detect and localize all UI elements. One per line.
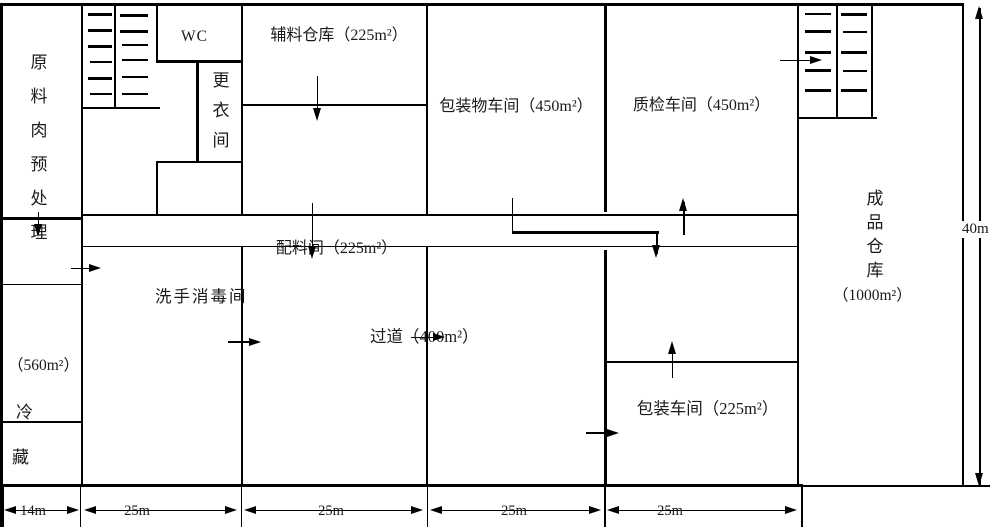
dim-span-25m-3-arrow-right xyxy=(589,506,601,514)
wall-line xyxy=(156,163,158,216)
wall-line xyxy=(242,104,427,106)
shelf-hatch-dash xyxy=(120,14,148,17)
wall-line xyxy=(605,361,798,363)
dim-span-14m-arrow-right xyxy=(67,506,79,514)
wall-line xyxy=(82,214,798,216)
dimension-label-25m-4: 25m xyxy=(645,503,695,520)
shelf-hatch-dash xyxy=(805,51,831,54)
shelf-hatch-dash xyxy=(122,59,148,61)
wall-line xyxy=(82,246,798,248)
room-label-quality-inspection: 质检车间（450m²） xyxy=(605,97,798,115)
dimension-label-25m-2: 25m xyxy=(306,503,356,520)
room-label-handwash-disinfect: 洗手消毒间 xyxy=(155,288,248,307)
shelf-hatch-dash xyxy=(88,13,112,16)
room-label-wc: WC xyxy=(181,28,208,46)
room-label-cold-char1: 冷 xyxy=(16,403,33,423)
dim-tick xyxy=(801,487,803,527)
wall-line xyxy=(800,485,990,487)
dimension-label-25m-1: 25m xyxy=(112,503,162,520)
factory-floor-plan: 原料肉预处理 （560m²） 冷 藏 WC 更衣间 辅料仓库（225m²） 包装… xyxy=(0,0,990,527)
room-label-aux-warehouse: 辅料仓库（225m²） xyxy=(250,27,428,45)
wall-line xyxy=(156,6,158,62)
dimension-label-14m: 14m xyxy=(10,503,56,520)
wall-line xyxy=(0,3,963,6)
wall-line xyxy=(114,6,116,107)
wall-line xyxy=(798,117,877,119)
dim-span-25m-4-shaft xyxy=(610,510,794,512)
shelf-hatch-dash xyxy=(805,30,831,33)
wall-line xyxy=(604,250,607,484)
flow-arrow-handwash-right-head xyxy=(249,338,261,346)
shelf-hatch-dash xyxy=(90,61,112,63)
wall-line xyxy=(83,107,160,109)
dim-tick xyxy=(604,487,607,527)
wall-line xyxy=(962,3,964,486)
dim-span-25m-2-arrow-left xyxy=(244,506,256,514)
shelf-hatch-dash xyxy=(841,89,867,92)
wall-line xyxy=(156,161,243,164)
dim-tick xyxy=(427,487,429,527)
wall-line xyxy=(871,6,873,118)
shelf-hatch-dash xyxy=(120,30,148,33)
flow-arrow-band-up-head xyxy=(679,198,687,211)
room-label-cold-char2: 藏 xyxy=(12,448,29,468)
flow-arrow-step-down-head xyxy=(652,245,660,258)
wall-line xyxy=(241,246,243,485)
shelf-hatch-dash xyxy=(122,44,148,46)
shelf-hatch-dash xyxy=(841,51,867,54)
room-label-raw-meat-area: （560m²） xyxy=(8,357,79,375)
shelf-hatch-dash xyxy=(841,13,867,16)
flow-arrow-ingredients-down-head xyxy=(308,246,316,259)
wall-line xyxy=(156,60,243,63)
flow-arrow-raw-meat-right-head xyxy=(89,264,101,272)
flow-arrow-raw-meat-down-head xyxy=(34,224,42,237)
wall-line xyxy=(512,231,659,234)
room-label-corridor: 过道（400m²） xyxy=(370,328,479,347)
dim-span-25m-4-arrow-right xyxy=(785,506,797,514)
wall-line xyxy=(0,421,82,423)
shelf-hatch-dash xyxy=(90,93,112,95)
shelf-hatch-dash xyxy=(805,69,831,72)
shelf-hatch-dash xyxy=(843,70,867,72)
room-label-finished-goods: 成品仓库 xyxy=(863,189,883,287)
shelf-hatch-dash xyxy=(122,76,148,78)
flow-arrow-packing-up-head xyxy=(668,341,676,354)
wall-line xyxy=(0,3,3,527)
wall-line xyxy=(836,6,838,118)
room-label-changing-room: 更衣间 xyxy=(209,71,229,166)
dimension-label-25m-3: 25m xyxy=(489,503,539,520)
dim-span-25m-4-arrow-left xyxy=(607,506,619,514)
shelf-hatch-dash xyxy=(843,31,867,33)
wall-line xyxy=(0,484,803,487)
shelf-hatch-dash xyxy=(805,13,831,15)
dim-span-25m-2-arrow-right xyxy=(411,506,423,514)
flow-arrow-corridor-right-head xyxy=(433,333,445,341)
flow-arrow-aux-warehouse-down-head xyxy=(313,108,321,121)
shelf-hatch-dash xyxy=(122,93,148,95)
dim-span-14m-arrow-left xyxy=(4,506,16,514)
dimension-label-40m: 40m xyxy=(960,221,990,238)
shelf-hatch-dash xyxy=(88,29,112,32)
shelf-hatch-dash xyxy=(88,45,112,48)
wall-line xyxy=(512,198,514,232)
room-label-packing-workshop: 包装车间（225m²） xyxy=(615,400,800,419)
dim-span-25m-1-arrow-left xyxy=(84,506,96,514)
shelf-hatch-dash xyxy=(805,89,831,92)
dim-span-25m-1-arrow-right xyxy=(225,506,237,514)
flow-arrow-packing-right-head xyxy=(607,429,619,437)
dim-span-25m-3-arrow-left xyxy=(430,506,442,514)
room-label-packing-materials: 包装物车间（450m²） xyxy=(427,98,605,116)
wall-line xyxy=(241,6,243,215)
shelf-hatch-dash xyxy=(88,77,112,80)
dim-40m-line xyxy=(979,8,981,485)
dim-40m-arrow-top xyxy=(975,6,983,19)
wall-line xyxy=(196,62,199,161)
dim-tick xyxy=(241,487,243,527)
wall-line xyxy=(426,246,428,485)
dim-tick xyxy=(80,487,82,527)
flow-arrow-quality-rack-right-head xyxy=(810,56,822,64)
room-label-ingredients: 配料间（225m²） xyxy=(244,240,429,258)
wall-line xyxy=(0,284,82,286)
dim-40m-arrow-bottom xyxy=(975,473,983,486)
room-label-finished-goods-area: （1000m²） xyxy=(833,287,912,305)
